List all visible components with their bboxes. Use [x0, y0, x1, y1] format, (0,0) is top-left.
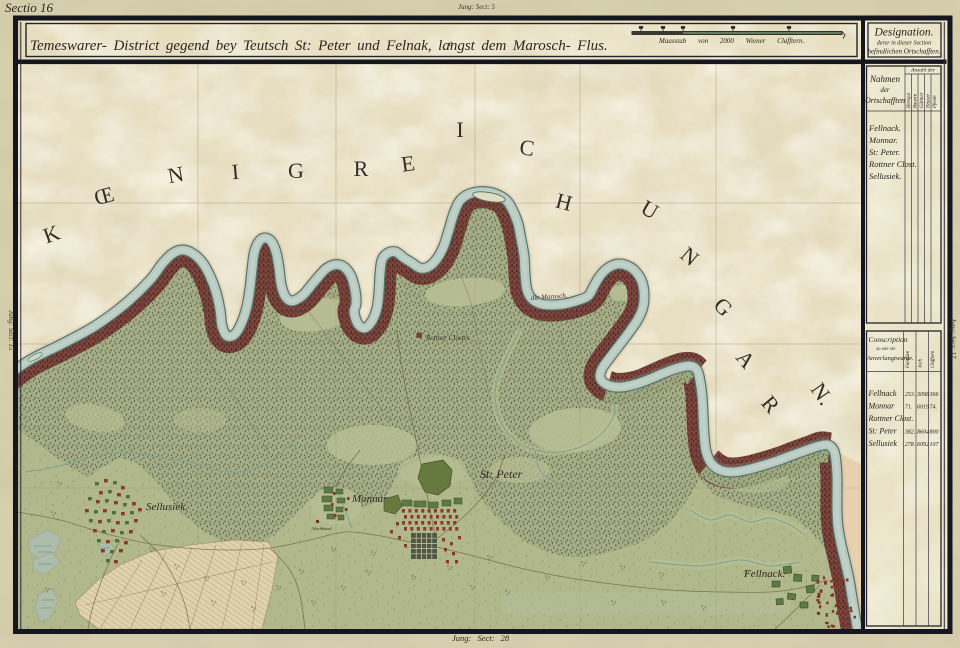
- svg-text:Sectio 16: Sectio 16: [5, 0, 54, 15]
- svg-text:Maasstab von 2000 Wiener Claff: Maasstab von 2000 Wiener Clafftern.: [658, 37, 804, 45]
- svg-text:Nahmen: Nahmen: [869, 74, 900, 84]
- svg-text:74.: 74.: [930, 404, 938, 411]
- svg-text:Joch: Joch: [919, 358, 924, 368]
- svg-text:Clafftern: Clafftern: [931, 350, 936, 368]
- svg-text:Jung: Sect: 17: Jung: Sect: 17: [949, 318, 957, 359]
- svg-text:Fellnack.: Fellnack.: [868, 123, 901, 133]
- svg-text:St: Peter: St: Peter: [869, 427, 898, 436]
- svg-text:so wie sie: so wie sie: [876, 347, 896, 352]
- svg-text:Sellusiek.: Sellusiek.: [869, 171, 901, 181]
- svg-text:derer in dieser Section: derer in dieser Section: [877, 41, 931, 47]
- svg-text:Jung: Sect: 15: Jung: Sect: 15: [7, 310, 15, 351]
- svg-text:Conscription: Conscription: [869, 335, 908, 344]
- svg-text:Rottner Clost.: Rottner Clost.: [868, 414, 914, 423]
- svg-text:Wachhaͤusl: Wachhaͤusl: [312, 526, 332, 531]
- svg-text:G: G: [288, 158, 304, 183]
- svg-text:der: der: [880, 86, 890, 94]
- svg-text:71.: 71.: [905, 405, 913, 411]
- svg-text:Fellnack: Fellnack: [868, 389, 897, 398]
- svg-text:befindlichen Ortschafften.: befindlichen Ortschafften.: [867, 48, 940, 56]
- svg-text:Fellnack.: Fellnack.: [743, 568, 785, 580]
- svg-text:278.: 278.: [905, 442, 916, 448]
- svg-text:Monnar: Monnar: [868, 402, 896, 411]
- svg-text:Jung: Sect: 28: Jung: Sect: 28: [452, 633, 510, 643]
- svg-text:Designation.: Designation.: [873, 27, 933, 39]
- svg-text:Rottner Closter.: Rottner Closter.: [425, 334, 471, 342]
- svg-text:Ortschafften: Ortschafften: [865, 96, 905, 105]
- svg-text:6019: 6019: [917, 405, 929, 411]
- svg-text:Pferde: Pferde: [933, 95, 938, 109]
- svg-text:Häuser: Häuser: [926, 94, 931, 109]
- svg-text:Temeswarer- District gegend be: Temeswarer- District gegend bey Teutsch …: [30, 38, 608, 54]
- svg-text:Sellusiek.: Sellusiek.: [146, 501, 188, 513]
- svg-text:107: 107: [930, 442, 940, 448]
- svg-text:8604: 8604: [917, 429, 929, 436]
- svg-text:Gärtner: Gärtner: [920, 92, 925, 108]
- svg-text:6092: 6092: [917, 442, 929, 448]
- svg-text:Anzahl der: Anzahl der: [910, 68, 936, 74]
- svg-text:382.: 382.: [904, 430, 916, 436]
- svg-text:R: R: [354, 156, 369, 181]
- svg-text:St: Peter.: St: Peter.: [869, 147, 900, 157]
- svg-text:Jung: Sect: 5: Jung: Sect: 5: [458, 3, 495, 11]
- svg-text:Bauern: Bauern: [913, 93, 918, 108]
- svg-text:St: Peter: St: Peter: [480, 467, 523, 481]
- svg-text:I: I: [456, 117, 463, 142]
- svg-text:Herrgut: Herrgut: [907, 92, 912, 109]
- svg-text:Sellusiek: Sellusiek: [869, 439, 898, 448]
- svg-text:253.: 253.: [905, 392, 916, 398]
- svg-text:Monnar.: Monnar.: [351, 493, 389, 505]
- svg-text:3098: 3098: [916, 392, 929, 398]
- svg-text:800: 800: [930, 430, 939, 436]
- svg-text:Rottner Clost.: Rottner Clost.: [868, 159, 917, 169]
- svg-text:Monnar.: Monnar.: [868, 135, 898, 145]
- svg-text:Familien: Familien: [906, 350, 911, 369]
- svg-text:366: 366: [929, 392, 939, 398]
